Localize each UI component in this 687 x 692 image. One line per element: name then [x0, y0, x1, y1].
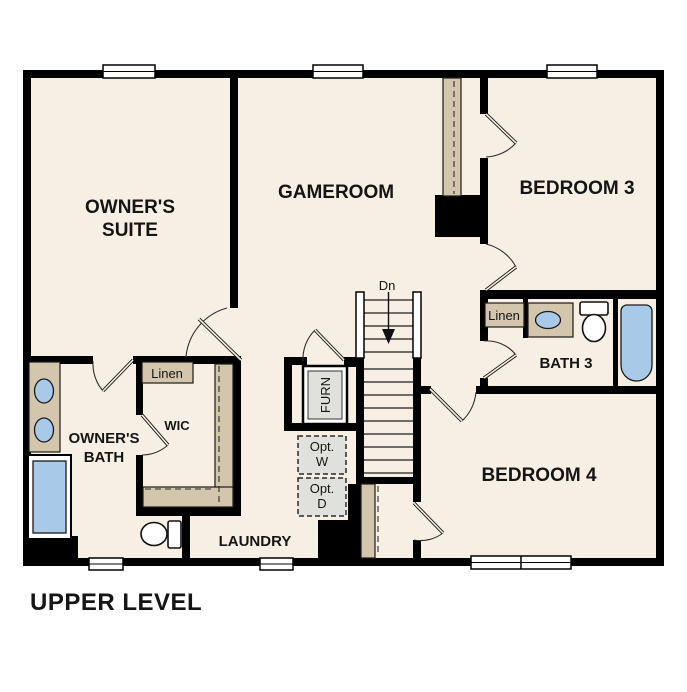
room-label-laundry: LAUNDRY	[219, 533, 292, 550]
room-label-owners-bath-1: OWNER'S	[68, 430, 139, 447]
linen-label: Linen	[151, 366, 183, 381]
window-icon	[103, 65, 155, 78]
window-icon	[313, 65, 363, 78]
wall-block-bottom-left	[23, 536, 78, 566]
room-label-owners-bath-2: BATH	[84, 449, 125, 466]
window-icon-double	[471, 556, 571, 569]
furnace-label: FURN	[318, 377, 333, 413]
wic-shelf-right	[215, 364, 233, 507]
svg-text:D: D	[317, 496, 326, 511]
sink-icon	[35, 418, 54, 442]
room-label-bath3: BATH 3	[539, 355, 592, 372]
dryer-optional-box: Opt. D	[298, 478, 346, 516]
double-vanity	[29, 362, 60, 452]
window-icon	[89, 558, 123, 570]
room-label-owners-suite-1: OWNER'S	[85, 197, 175, 218]
window-icon	[547, 65, 597, 78]
page-title: UPPER LEVEL	[30, 589, 202, 616]
stair-rail-left	[356, 292, 364, 358]
stair-rail-right	[413, 292, 421, 358]
sink-icon	[35, 379, 54, 403]
wall-chase-block	[435, 195, 488, 237]
stairs-down-label: Dn	[379, 278, 396, 293]
toilet-icon	[141, 521, 181, 548]
svg-text:Opt.: Opt.	[310, 439, 335, 454]
room-label-gameroom: GAMEROOM	[278, 182, 394, 203]
wall-block-laundry	[318, 520, 361, 566]
room-label-bedroom3: BEDROOM 3	[519, 178, 634, 199]
room-label-owners-suite-2: SUITE	[102, 220, 158, 241]
svg-text:W: W	[316, 454, 329, 469]
shower-icon	[28, 455, 71, 539]
bathtub-icon	[621, 305, 652, 381]
linen-closet-bath3: Linen	[485, 303, 524, 327]
floorplan-page: Dn	[0, 0, 687, 687]
room-label-wic: WIC	[164, 418, 190, 433]
toilet-icon	[580, 302, 608, 342]
linen-label: Linen	[488, 308, 520, 323]
chase-strip	[443, 78, 461, 196]
furnace-box: FURN	[303, 366, 347, 424]
vanity-bath3	[528, 303, 573, 337]
sink-icon	[536, 312, 561, 329]
floorplan-svg: Dn	[0, 0, 687, 687]
room-label-bedroom4: BEDROOM 4	[481, 465, 597, 486]
washer-optional-box: Opt. W	[298, 436, 346, 474]
svg-text:Opt.: Opt.	[310, 481, 335, 496]
bedroom4-closet-shelf	[361, 484, 375, 558]
linen-closet-wic: Linen	[142, 362, 193, 383]
window-icon	[260, 558, 293, 570]
